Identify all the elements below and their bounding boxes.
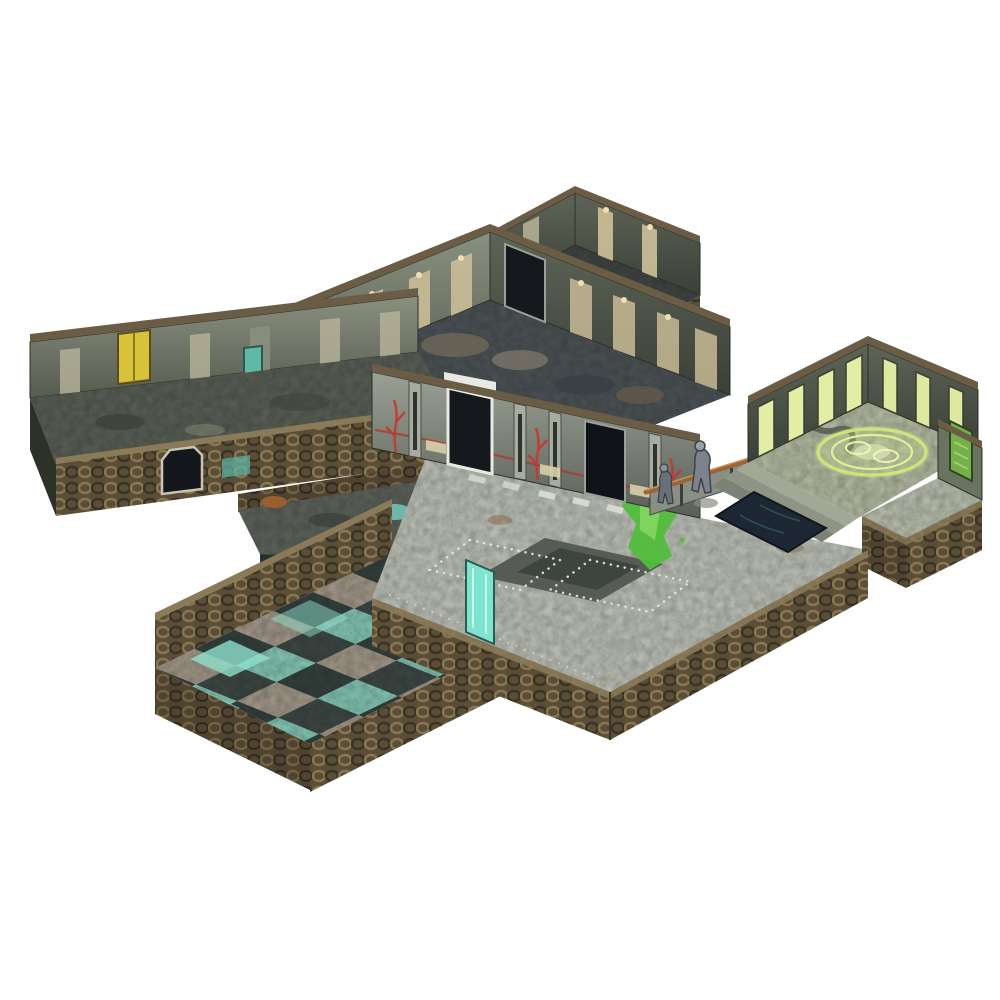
- statue-head: [695, 441, 705, 451]
- debris-mound: [421, 333, 489, 357]
- wall-light: [416, 272, 422, 278]
- glowing-panel: [758, 399, 774, 457]
- second-doorway: [585, 421, 625, 502]
- floor-stain: [555, 375, 615, 395]
- terrain-scene: Isometric product photo of a modular sci…: [0, 0, 1000, 1000]
- wall-light: [603, 207, 609, 213]
- wall-panel: [451, 253, 472, 316]
- ritual-circle-core: [854, 444, 890, 460]
- rust-spot: [488, 515, 512, 525]
- glowing-panel: [883, 358, 897, 414]
- pillar-slit: [518, 414, 522, 472]
- floor-stain: [95, 414, 145, 430]
- glowing-panel: [846, 355, 862, 413]
- wall-panel: [642, 224, 657, 278]
- glowing-panel: [916, 372, 930, 428]
- wall-light: [665, 314, 671, 320]
- glowing-panel: [788, 384, 804, 442]
- wall-light: [578, 280, 584, 286]
- slime-droplet: [680, 538, 685, 543]
- water-channel: [466, 560, 494, 644]
- rust-debris: [261, 496, 287, 508]
- wall-panel: [613, 295, 635, 357]
- wall-panel: [380, 311, 400, 357]
- wall-panel: [190, 333, 210, 379]
- wall-panel: [695, 328, 717, 390]
- debris-mound: [616, 386, 664, 404]
- teal-waterfall: [466, 560, 494, 644]
- wall-panel: [570, 278, 592, 340]
- wall-light: [647, 224, 653, 230]
- product-photo: Isometric product photo of a modular sci…: [0, 0, 1000, 1000]
- statue-shadow: [694, 498, 718, 508]
- floor-wear: [604, 639, 636, 651]
- wall-panel: [320, 318, 340, 364]
- pipe-post: [680, 484, 683, 506]
- wall-panel: [657, 312, 679, 374]
- statue-head: [660, 464, 668, 472]
- wall-panel: [60, 348, 80, 394]
- glowing-panel: [818, 369, 834, 427]
- floor-stain: [270, 393, 330, 411]
- archway: [162, 447, 202, 494]
- wall-light: [458, 255, 464, 261]
- pillar-slit: [413, 392, 417, 450]
- wall-light: [621, 297, 627, 303]
- wall-panel: [598, 207, 613, 261]
- debris-mound: [492, 350, 548, 370]
- floor-dust: [185, 424, 225, 436]
- teal-wall-panel: [222, 455, 250, 478]
- gate-doorway: [448, 388, 492, 474]
